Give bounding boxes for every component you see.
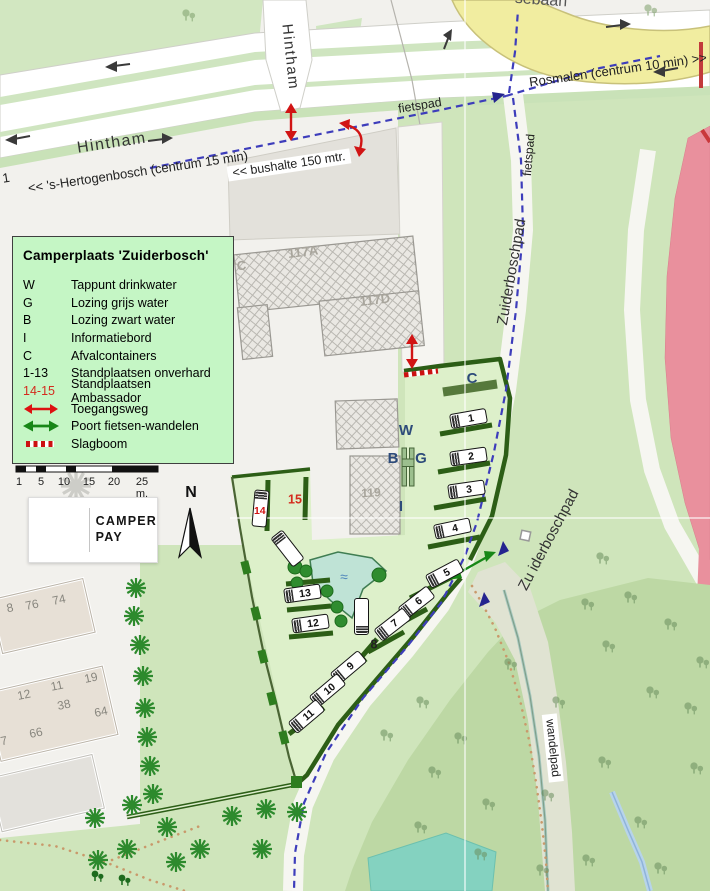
facility-label-i-infobord: I: [399, 499, 403, 515]
spot-label-15: 15: [288, 493, 302, 506]
spot-number: 7: [388, 616, 400, 629]
building-117: [232, 236, 425, 364]
legend-key: 14-15: [23, 384, 71, 398]
facility-label-c-containers: C: [467, 371, 478, 387]
legend-item-label: Poort fietsen-wandelen: [71, 419, 199, 433]
house-number-11: 11: [50, 679, 65, 694]
camper-icon: [354, 598, 369, 635]
facility-label-b-zwartwater: B: [388, 451, 399, 467]
spot-number: 11: [300, 706, 316, 722]
camper-pitch-14: 14: [251, 489, 269, 527]
building-label-117c: 'C: [233, 258, 247, 273]
house-number-66: 66: [28, 725, 44, 740]
north-arrow: N: [176, 484, 206, 502]
scale-label: 10: [58, 476, 70, 488]
building-service: [335, 399, 399, 449]
camper-cab-icon: [292, 618, 301, 631]
building-label-119: 119: [361, 486, 381, 500]
camper-cab-icon: [434, 524, 443, 537]
legend-item-label: Slagboom: [71, 437, 127, 451]
logo-text-line2: PAY: [96, 530, 157, 546]
tree-icon: [372, 568, 386, 582]
legend-item-label: Tappunt drinkwater: [71, 278, 177, 292]
spot-number: 1: [467, 411, 475, 424]
legend-panel: Camperplaats 'Zuiderbosch' WTappunt drin…: [12, 236, 234, 464]
camper-cab-icon: [450, 451, 459, 464]
camper-pay-logo: CAMPER PAY: [28, 497, 158, 563]
path-marker-square: [520, 530, 531, 541]
tree-icon: [300, 565, 312, 577]
legend-key: C: [23, 349, 71, 363]
red-double-arrow-icon: [23, 402, 71, 416]
facility-label-w-drinkwater: W: [399, 423, 413, 439]
camperplaats-map: Camperplaats 'Zuiderbosch' WTappunt drin…: [0, 0, 710, 891]
legend-item: Poort fietsen-wandelen: [23, 418, 223, 436]
legend-item: BLozing zwart water: [23, 311, 223, 329]
legend-item-label: Lozing zwart water: [71, 313, 175, 327]
tree-icon: [331, 601, 343, 613]
north-label: N: [176, 484, 206, 502]
camper-cab-icon: [450, 414, 459, 427]
logo-text-line1: CAMPER: [96, 514, 157, 530]
legend-item-label: Afvalcontainers: [71, 349, 156, 363]
legend-item: GLozing grijs water: [23, 294, 223, 312]
house-number-64: 64: [93, 704, 109, 719]
spot-number: 6: [412, 594, 424, 607]
green-double-arrow-icon: [23, 419, 71, 433]
legend-title: Camperplaats 'Zuiderbosch': [23, 248, 223, 263]
spot-number: 9: [344, 659, 356, 672]
scale-label: 20: [108, 476, 120, 488]
legend-item: Slagboom: [23, 435, 223, 453]
spot-number: 14: [254, 504, 266, 516]
spot-number: 3: [465, 482, 472, 495]
camper-cab-icon: [255, 491, 268, 499]
scale-label: 1: [16, 476, 22, 488]
legend-item-label: Informatiebord: [71, 331, 152, 345]
house-number-74: 74: [51, 592, 67, 607]
legend-item-label: Toegangsweg: [71, 402, 148, 416]
slagboom-icon: [23, 437, 71, 451]
logo-divider: [89, 508, 90, 552]
legend-key: G: [23, 296, 71, 310]
scale-bar: [16, 466, 158, 472]
camper-cab-icon: [284, 588, 293, 601]
legend-key: B: [23, 313, 71, 327]
spot-number: 5: [441, 565, 452, 578]
legend-key: I: [23, 331, 71, 345]
legend-items: WTappunt drinkwaterGLozing grijs waterBL…: [23, 276, 223, 453]
tree-icon: [321, 585, 333, 597]
legend-item: CAfvalcontainers: [23, 347, 223, 365]
camper-cab-icon: [355, 626, 367, 633]
house-number-38: 38: [56, 697, 72, 712]
spot-number: 2: [467, 449, 474, 462]
house-number-19: 19: [83, 670, 99, 685]
spot-number: 13: [298, 586, 311, 600]
house-number-76: 76: [24, 597, 40, 612]
scale-label: 15: [83, 476, 95, 488]
legend-key: 1-13: [23, 366, 71, 380]
legend-item-label: Lozing grijs water: [71, 296, 168, 310]
spot-number: 4: [450, 521, 458, 534]
scale-label: 5: [38, 476, 44, 488]
house-number-12: 12: [16, 687, 32, 702]
camper-cab-icon: [448, 484, 457, 497]
legend-item: 14-15Standplaatsen Ambassador: [23, 382, 223, 400]
legend-item: WTappunt drinkwater: [23, 276, 223, 294]
legend-key: W: [23, 278, 71, 292]
spot-label-8: 8: [371, 638, 378, 651]
facility-label-g-grijswater: G: [415, 451, 427, 467]
pond-waves: ≈: [340, 570, 348, 585]
legend-item: IInformatiebord: [23, 329, 223, 347]
spot-number: 12: [306, 616, 319, 630]
tree-icon: [335, 615, 347, 627]
